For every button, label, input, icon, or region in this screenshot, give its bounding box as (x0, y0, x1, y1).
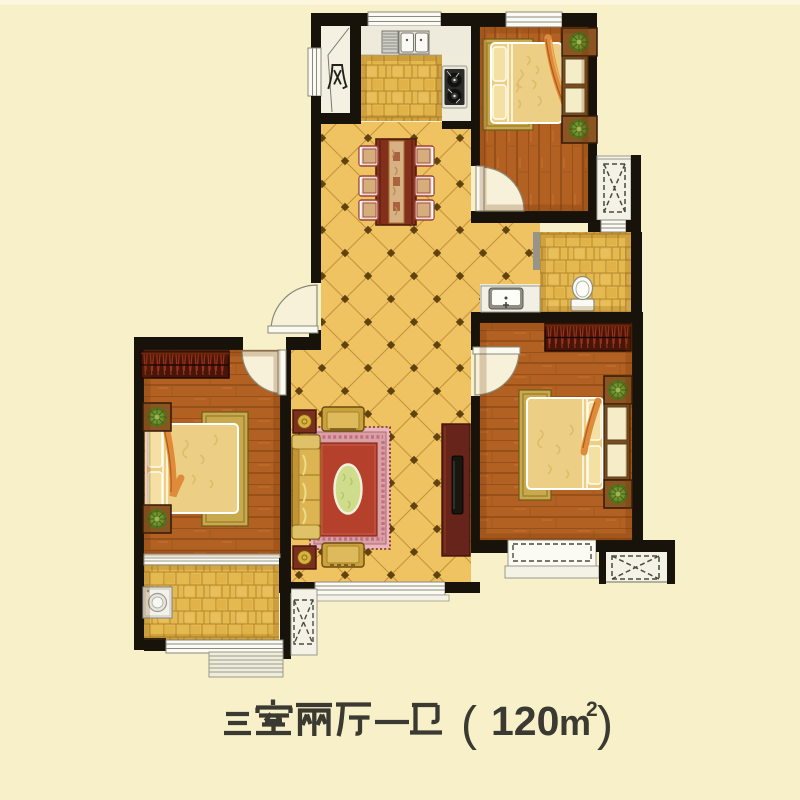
svg-text:(: ( (461, 698, 477, 751)
svg-text:120: 120 (491, 698, 559, 744)
svg-text:2: 2 (586, 698, 598, 721)
svg-text:): ) (597, 698, 613, 751)
